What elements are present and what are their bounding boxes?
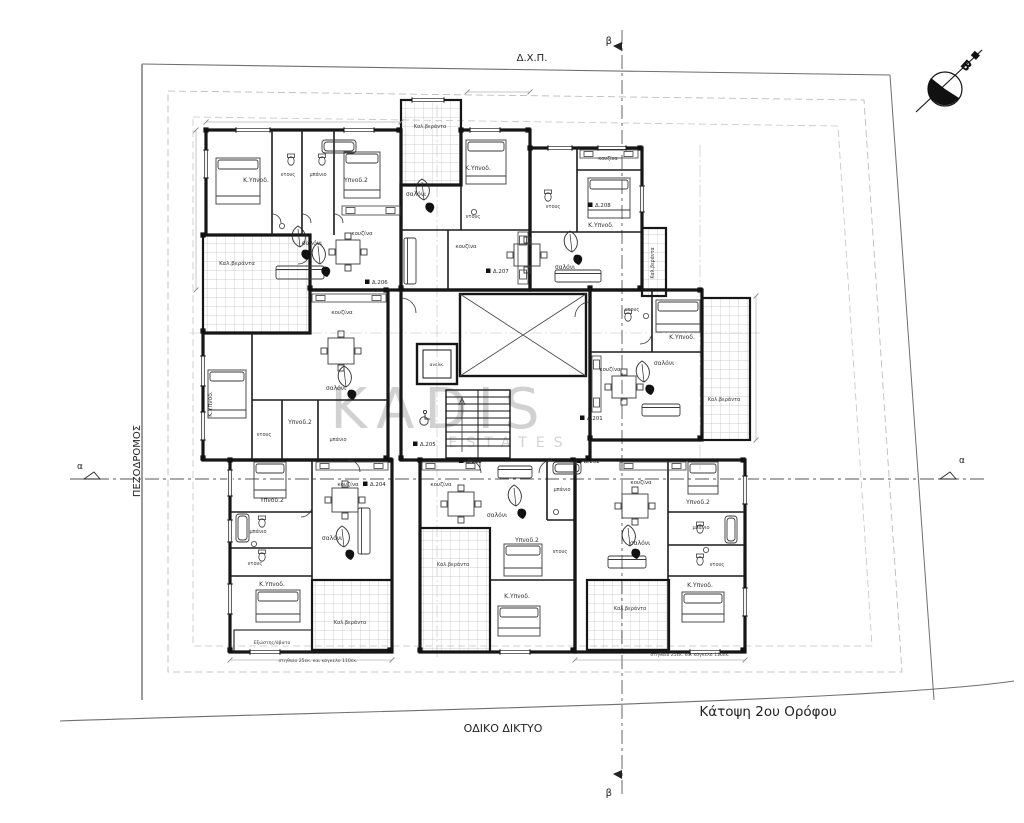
bed-pillow	[256, 464, 284, 473]
room-label: κουζίνα	[630, 479, 652, 486]
unit-tag-label: Δ.202	[584, 459, 600, 465]
column-icon	[458, 127, 463, 132]
bed-icon	[656, 300, 700, 332]
bed-icon	[504, 544, 542, 576]
bed-pillow	[690, 464, 716, 473]
unit-tag: Δ.206	[365, 280, 388, 287]
toilet-bowl	[259, 519, 265, 527]
window-icon	[639, 186, 645, 212]
bed-frame	[504, 544, 542, 576]
kitchen-counter-icon	[316, 462, 388, 470]
room-label: Κ.Υπνοδ.	[504, 593, 530, 600]
chair-icon	[355, 348, 361, 354]
unit-tag-icon	[580, 416, 585, 421]
door-swing-icon	[401, 298, 416, 313]
table-top	[332, 488, 358, 512]
bed-pillow	[346, 154, 378, 163]
sofa-body	[404, 238, 416, 284]
dimension-line	[573, 658, 748, 663]
sofa-icon	[555, 270, 601, 282]
sofa-body	[498, 466, 532, 478]
room-label: σαλόνι	[406, 191, 426, 198]
leaf-rib	[642, 364, 644, 382]
chair-icon	[329, 249, 335, 255]
plant-icon	[508, 485, 526, 519]
sink-icon	[584, 152, 593, 157]
room-label: Καλ.βεράντα	[334, 619, 367, 626]
unit-tag-label: Δ.204	[370, 482, 386, 488]
chair-icon	[441, 501, 447, 507]
dining-table-icon	[321, 331, 361, 371]
room-label: ντους	[710, 562, 725, 568]
sofa-icon	[498, 466, 532, 478]
dimension-line	[204, 120, 404, 125]
plan-title: Κάτοψη 2ου Ορόφου	[699, 704, 836, 720]
column-icon	[587, 285, 592, 290]
sofa-body	[358, 508, 370, 554]
bed-frame	[682, 592, 724, 622]
hob-icon	[594, 398, 600, 407]
chair-icon	[541, 252, 547, 258]
dining-table-icon	[615, 487, 655, 525]
sink-icon	[320, 464, 329, 469]
bathtub-icon	[725, 516, 737, 543]
unit-tag-icon	[486, 269, 491, 274]
window-icon	[742, 588, 748, 616]
room-label: Καλ.βεράντα	[614, 605, 647, 612]
plant-icon	[336, 526, 354, 560]
window-icon	[227, 520, 233, 542]
table-top	[336, 240, 360, 264]
unit-tag: Δ.205	[413, 442, 436, 449]
door-swing-icon	[272, 214, 281, 223]
veranda-tiles	[401, 100, 461, 185]
unit-tag: Δ.202	[577, 459, 600, 466]
window-icon	[470, 127, 500, 133]
chair-icon	[632, 487, 638, 493]
unit-tag-label: Δ.203	[466, 459, 482, 465]
column-icon	[398, 285, 403, 290]
window-icon	[227, 584, 233, 614]
basin-icon	[553, 509, 558, 514]
room-label: σαλόνι	[322, 535, 342, 542]
bed-pillow	[684, 594, 722, 603]
room-label: Κ.Υπνοδ.	[259, 581, 285, 588]
window-gap	[742, 588, 748, 616]
tub-inner	[238, 516, 247, 540]
chair-icon	[458, 485, 464, 491]
room-label: ντους	[466, 214, 481, 220]
bed-icon	[588, 178, 630, 218]
window-gap	[227, 584, 233, 614]
section-label-alpha-left: α	[77, 462, 83, 472]
room-label: κουζίνα	[430, 481, 452, 488]
bed-icon	[466, 140, 506, 184]
toilet-icon	[259, 516, 266, 527]
bed-frame	[254, 462, 286, 498]
dimension-line	[465, 90, 533, 95]
unit-tag: Δ.207	[486, 269, 509, 276]
sofa-body	[608, 556, 646, 568]
column-icon	[740, 647, 745, 652]
window-icon	[344, 127, 374, 133]
chair-icon	[637, 384, 643, 390]
partition	[230, 460, 312, 580]
kitchen-counter-icon	[342, 206, 400, 215]
room-label: Εξώστης/άβατο	[254, 639, 291, 646]
veranda-tiles	[312, 580, 392, 650]
door-swing-icon	[539, 460, 552, 473]
room-label: Καλ.βεράντα	[414, 123, 447, 130]
column-icon	[637, 285, 642, 290]
watermark-line1: KADIS	[330, 377, 549, 442]
column-icon	[697, 435, 702, 440]
room-label: μπάνιο	[553, 486, 570, 493]
section-label-alpha-right: α	[959, 456, 965, 466]
room-label: κουζίνα	[598, 155, 618, 162]
room-label: Υπνοδ.2	[514, 537, 539, 544]
room-label: Κ.Υπνοδ.	[669, 334, 695, 341]
road-edge	[60, 681, 1014, 721]
room-label: κουζίνα	[331, 309, 353, 316]
table-top	[448, 492, 474, 516]
bed-icon	[682, 592, 724, 622]
unit-tag-icon	[577, 459, 582, 464]
chair-icon	[345, 265, 351, 271]
hob-icon	[624, 152, 633, 157]
bed-frame	[498, 606, 540, 636]
window-icon	[250, 649, 280, 655]
chair-icon	[325, 497, 331, 503]
plant-icon	[312, 243, 330, 277]
column-icon	[200, 328, 205, 333]
leaf-solid	[517, 509, 526, 519]
chair-icon	[321, 348, 327, 354]
toilet-icon	[288, 154, 295, 165]
room-label: Υπνοδ.2	[343, 177, 368, 184]
door-swing-icon	[575, 302, 590, 317]
veranda-tiles	[420, 528, 490, 652]
sink-icon	[624, 464, 633, 469]
dimension-line	[194, 128, 199, 293]
bed-pillow	[218, 160, 258, 169]
window-icon	[200, 412, 206, 440]
chair-icon	[345, 233, 351, 239]
bed-pillow	[210, 372, 244, 381]
window-gap	[548, 145, 572, 151]
window-icon	[227, 470, 233, 496]
unit-201-walls	[590, 290, 702, 440]
bed-pillow	[506, 546, 540, 555]
chair-icon	[361, 249, 367, 255]
column-icon	[227, 457, 232, 462]
chair-icon	[475, 501, 481, 507]
window-gap	[470, 127, 500, 133]
room-label: σαλόνι	[654, 360, 674, 367]
room-label: ντους	[248, 561, 263, 567]
veranda-tiles	[203, 235, 310, 333]
sofa-body	[555, 270, 601, 282]
room-label: μπάνιο	[309, 171, 326, 178]
bed-icon	[498, 606, 540, 636]
leaf-solid	[425, 203, 434, 213]
unit-tag-icon	[459, 459, 464, 464]
window-gap	[227, 470, 233, 496]
window-icon	[742, 476, 748, 504]
column-icon	[697, 287, 702, 292]
door-swing-icon	[302, 214, 311, 223]
room-label: Κ.Υπνοδ.	[687, 582, 713, 589]
bed-pillow	[468, 142, 504, 151]
bathtub-icon	[236, 514, 249, 542]
room-label: Κ.Υπνοδ.	[207, 391, 214, 417]
sink-icon	[346, 208, 355, 214]
sink-icon	[316, 296, 325, 301]
unit-tag-label: Δ.205	[420, 442, 436, 448]
window-gap	[203, 150, 209, 178]
column-icon	[383, 287, 388, 292]
unit-tag-label: Δ.207	[493, 269, 509, 275]
basin-icon	[251, 541, 256, 546]
veranda-tiles	[702, 298, 750, 440]
kitchen-counter-icon	[518, 232, 528, 284]
doors-layer	[272, 214, 652, 517]
table-top	[612, 376, 636, 398]
leaf-solid	[345, 550, 354, 560]
column-icon	[527, 145, 532, 150]
room-label: κουζίνα	[599, 366, 621, 373]
bed-pillow	[500, 608, 538, 617]
toilet-icon	[545, 190, 552, 201]
window-gap	[742, 476, 748, 504]
door-swing-icon	[640, 332, 652, 344]
room-label: Κ.Υπνοδ.	[588, 222, 614, 229]
window-gap	[639, 186, 645, 212]
window-gap	[236, 127, 270, 133]
column-icon	[525, 127, 530, 132]
tub-inner	[727, 518, 735, 541]
hob-icon	[372, 296, 381, 301]
room-label: ντους	[625, 307, 640, 313]
chair-icon	[338, 331, 344, 337]
toilet-bowl	[697, 557, 703, 565]
watermark: KADIS ESTATES	[330, 377, 571, 451]
unit-tag-label: Δ.201	[587, 416, 603, 422]
section-flag-icon	[613, 770, 622, 779]
bottom-street-label: ΟΔΙΚΟ ΔΙΚΤΥΟ	[464, 722, 543, 735]
toilet-icon	[319, 154, 326, 165]
column-icon	[387, 647, 392, 652]
toilet-bowl	[545, 193, 551, 201]
toilet-bowl	[288, 157, 294, 165]
window-gap	[200, 356, 206, 386]
unit-tag-icon	[363, 482, 368, 487]
room-label: κουζίνα	[455, 243, 477, 250]
window-icon	[200, 356, 206, 386]
room-label: μπάνιο	[249, 528, 266, 535]
leaf-solid	[321, 267, 330, 277]
sofa-icon	[404, 238, 416, 284]
chair-icon	[632, 519, 638, 525]
dimension-line	[754, 294, 759, 443]
room-label: σαλόνι	[487, 512, 507, 519]
section-label-beta-top: β	[606, 36, 612, 47]
north-arrow-icon: Β	[916, 50, 982, 112]
bed-frame	[344, 152, 380, 198]
shaft-cross-icon	[460, 294, 586, 376]
room-label: ντους	[281, 172, 296, 178]
room-label: Κ.Υπνοδ.	[243, 177, 269, 184]
bed-frame	[688, 462, 718, 494]
unit-tag-icon	[588, 203, 593, 208]
chair-icon	[458, 517, 464, 523]
floor-plan-page: KADIS ESTATES β β α α Β	[0, 0, 1024, 823]
window-gap	[412, 97, 444, 103]
parapet-note: στηθαίο 25εκ. και κάγκελο 110εκ.	[278, 657, 357, 664]
column-icon	[417, 647, 422, 652]
room-label: Καλ.βεράντα	[437, 561, 470, 568]
window-icon	[203, 150, 209, 178]
room-label: Καλ.βεράντα	[649, 247, 656, 278]
room-label: κουζίνα	[337, 481, 359, 488]
chair-icon	[605, 384, 611, 390]
toilet-bowl	[259, 553, 265, 561]
column-icon	[740, 457, 745, 462]
chair-icon	[649, 503, 655, 509]
sofa-icon	[358, 508, 370, 554]
bed-frame	[256, 590, 300, 622]
room-label: μπάνιο	[692, 524, 709, 531]
bed-pillow	[658, 302, 698, 311]
unit-tag: Δ.208	[588, 203, 611, 210]
bed-pillow	[258, 592, 298, 601]
bed-icon	[254, 462, 286, 498]
bed-icon	[344, 152, 380, 198]
unit-tag-label: Δ.206	[372, 280, 388, 286]
toilet-icon	[259, 550, 266, 561]
section-flag-icon	[613, 42, 622, 51]
sofa-icon	[608, 556, 646, 568]
left-street-label: ΠΕΖΟΔΡΟΜΟΣ	[132, 425, 143, 497]
dining-table-icon	[507, 237, 547, 273]
room-label: Κ.Υπνοδ.	[465, 165, 491, 172]
column-icon	[570, 647, 575, 652]
room-label: σαλόνι	[555, 264, 575, 271]
kitchen-counter-icon	[592, 356, 601, 412]
leaf-solid	[631, 549, 640, 559]
toilet-bowl	[625, 313, 631, 321]
column-icon	[398, 455, 403, 460]
room-label: Υπνοδ.2	[287, 419, 312, 426]
window-icon	[500, 649, 530, 655]
kitchen-counter-icon	[312, 294, 386, 302]
window-gap	[250, 649, 280, 655]
elevator-label: ανελκ.	[430, 362, 445, 368]
bed-frame	[466, 140, 506, 184]
section-flag-icon	[84, 472, 100, 479]
unit-tag: Δ.203	[459, 459, 482, 466]
chair-icon	[615, 503, 621, 509]
basin-icon	[643, 313, 648, 318]
leaf-rib	[514, 488, 516, 506]
window-icon	[548, 145, 572, 151]
unit-tag-label: Δ.208	[595, 203, 611, 209]
dining-table-icon	[441, 485, 481, 523]
room-label: Υπνοδ.2	[259, 497, 284, 504]
room-label: μπάνιο	[329, 436, 346, 443]
hob-icon	[520, 270, 527, 279]
hob-icon	[386, 208, 395, 214]
column-icon	[227, 647, 232, 652]
boundary-top	[142, 64, 890, 75]
window-gap	[344, 127, 374, 133]
bed-icon	[688, 462, 718, 494]
room-label: ντους	[553, 549, 568, 555]
unit-tag-icon	[413, 442, 418, 447]
chair-icon	[342, 513, 348, 519]
sink-icon	[426, 464, 435, 469]
bed-frame	[656, 300, 700, 332]
room-label: σαλόνι	[630, 540, 650, 547]
dining-table-icon	[329, 233, 367, 271]
top-area-label: Δ.Χ.Π.	[517, 53, 548, 64]
partition	[272, 130, 334, 235]
room-label: κουζίνα	[351, 230, 373, 237]
plant-icon	[564, 231, 582, 265]
column-icon	[203, 127, 208, 132]
partition	[668, 460, 745, 652]
leaf-rib	[318, 246, 320, 264]
bed-frame	[588, 178, 630, 218]
toilet-bowl	[319, 157, 325, 165]
bathtub-icon	[553, 462, 581, 474]
chair-icon	[359, 497, 365, 503]
boundary-right	[890, 75, 934, 700]
column-icon	[587, 435, 592, 440]
dining-table-icon	[605, 369, 643, 405]
unit-tag: Δ.204	[363, 482, 386, 489]
window-gap	[200, 412, 206, 440]
leaf-rib	[570, 234, 572, 252]
room-label: ντους	[257, 432, 272, 438]
chair-icon	[507, 252, 513, 258]
column-icon	[200, 232, 205, 237]
window-gap	[500, 649, 530, 655]
sofa-icon	[642, 404, 680, 416]
basin-icon	[279, 223, 284, 228]
column-icon	[396, 127, 401, 132]
room-label: ντους	[546, 204, 561, 210]
room-label: Καλ.βεράντα	[219, 260, 255, 267]
basin-icon	[703, 547, 708, 552]
kitchen-counter-icon	[620, 462, 686, 470]
tub-inner	[324, 142, 354, 151]
room-label: Υπνοδ.2	[685, 499, 710, 506]
leaf-solid	[645, 385, 654, 395]
column-icon	[307, 285, 312, 290]
leaf-rib	[342, 529, 344, 547]
hob-icon	[374, 464, 383, 469]
table-top	[622, 494, 648, 518]
bathtub-icon	[322, 140, 356, 153]
sofa-body	[642, 404, 680, 416]
column-icon	[383, 455, 388, 460]
room-label: σαλόνι	[302, 240, 322, 247]
table-top	[328, 338, 354, 364]
section-label-beta-bottom: β	[606, 788, 612, 799]
window-gap	[227, 520, 233, 542]
parapet-note: στηθαίο 25εκ. και κάγκελο 110εκ.	[650, 651, 729, 658]
